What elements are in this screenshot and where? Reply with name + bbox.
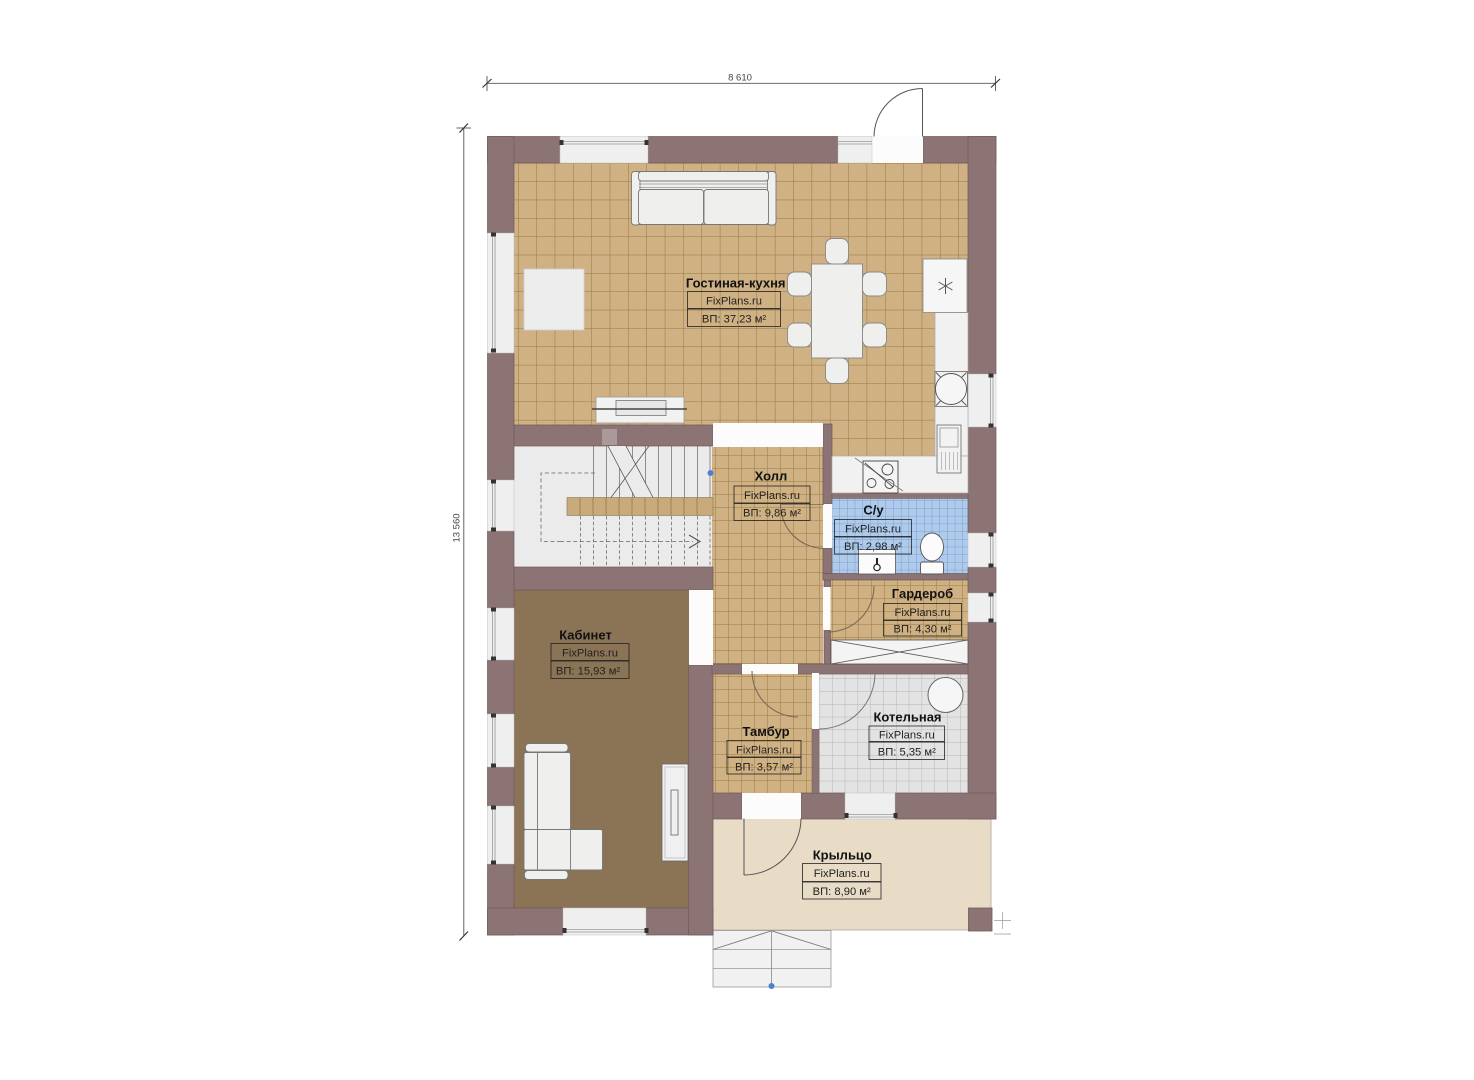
svg-text:Тамбур: Тамбур	[742, 724, 789, 739]
svg-text:FixPlans.ru: FixPlans.ru	[845, 524, 901, 536]
svg-text:ВП: 37,23 м²: ВП: 37,23 м²	[702, 314, 767, 326]
svg-text:ВП: 5,35 м²: ВП: 5,35 м²	[878, 747, 936, 759]
svg-text:ВП: 15,93 м²: ВП: 15,93 м²	[556, 666, 621, 678]
svg-text:ВП: 9,86 м²: ВП: 9,86 м²	[743, 508, 801, 520]
svg-text:FixPlans.ru: FixPlans.ru	[736, 745, 792, 757]
svg-text:Гостиная-кухня: Гостиная-кухня	[686, 276, 786, 291]
svg-text:Крыльцо: Крыльцо	[813, 848, 872, 863]
svg-text:С/у: С/у	[863, 503, 884, 518]
svg-text:FixPlans.ru: FixPlans.ru	[879, 730, 935, 742]
svg-text:FixPlans.ru: FixPlans.ru	[706, 296, 762, 308]
svg-text:Кабинет: Кабинет	[559, 628, 612, 643]
svg-text:Котельная: Котельная	[873, 710, 941, 725]
svg-text:FixPlans.ru: FixPlans.ru	[814, 868, 870, 880]
svg-text:FixPlans.ru: FixPlans.ru	[744, 490, 800, 502]
svg-text:FixPlans.ru: FixPlans.ru	[895, 607, 951, 619]
svg-text:FixPlans.ru: FixPlans.ru	[562, 648, 618, 660]
svg-text:Холл: Холл	[755, 469, 788, 484]
svg-text:ВП: 2,98 м²: ВП: 2,98 м²	[844, 541, 902, 553]
svg-text:ВП: 8,90 м²: ВП: 8,90 м²	[813, 886, 871, 898]
svg-text:ВП: 3,57 м²: ВП: 3,57 м²	[735, 762, 793, 774]
svg-text:13 560: 13 560	[452, 513, 463, 542]
svg-text:8 610: 8 610	[728, 73, 752, 84]
svg-text:ВП: 4,30 м²: ВП: 4,30 м²	[893, 624, 951, 636]
svg-text:Гардероб: Гардероб	[892, 586, 953, 601]
